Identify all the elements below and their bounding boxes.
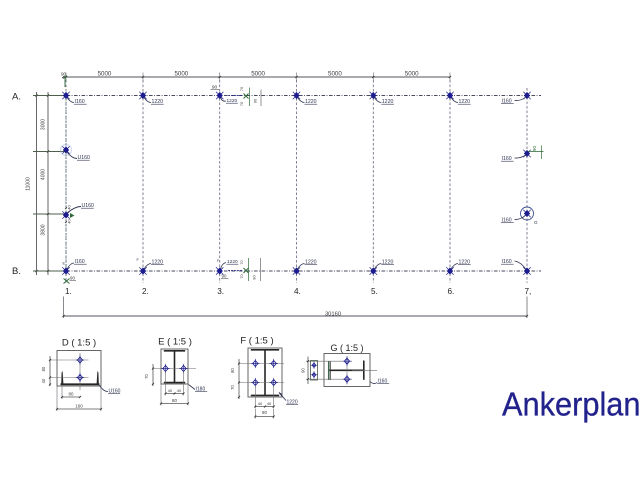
svg-text:3800: 3800: [41, 224, 47, 235]
svg-text:40: 40: [67, 219, 72, 224]
svg-text:70: 70: [240, 102, 244, 106]
svg-text:E ( 1:5 ): E ( 1:5 ): [158, 337, 192, 348]
svg-text:90: 90: [222, 274, 227, 279]
svg-text:G ( 1:5 ): G ( 1:5 ): [330, 343, 363, 353]
svg-text:D ( 1:5 ): D ( 1:5 ): [62, 338, 96, 349]
svg-text:160: 160: [75, 404, 83, 409]
svg-text:90: 90: [70, 275, 75, 280]
svg-text:70: 70: [144, 374, 149, 379]
svg-text:80: 80: [41, 366, 46, 371]
svg-text:40: 40: [258, 401, 263, 406]
svg-text:70: 70: [240, 260, 244, 264]
svg-text:70: 70: [240, 274, 244, 278]
svg-text:90: 90: [253, 98, 258, 103]
svg-text:90: 90: [301, 368, 306, 373]
svg-text:7,: 7,: [525, 287, 532, 296]
svg-text:5.: 5.: [371, 287, 378, 296]
svg-text:4000: 4000: [41, 169, 47, 180]
svg-text:A.: A.: [12, 92, 21, 103]
svg-text:40: 40: [67, 205, 72, 210]
svg-text:5000: 5000: [328, 71, 342, 78]
svg-text:F ( 1:5 ): F ( 1:5 ): [240, 336, 273, 347]
svg-text:5000: 5000: [405, 71, 419, 78]
svg-text:40: 40: [41, 378, 46, 383]
svg-text:40: 40: [267, 401, 272, 406]
svg-text:5000: 5000: [174, 71, 188, 78]
svg-text:B.: B.: [12, 266, 21, 277]
svg-text:90: 90: [252, 275, 257, 280]
svg-text:3000: 3000: [41, 119, 47, 130]
svg-text:4.: 4.: [294, 287, 301, 296]
svg-text:1.: 1.: [65, 287, 72, 296]
svg-text:6.: 6.: [448, 287, 455, 296]
svg-text:40: 40: [168, 388, 173, 393]
svg-text:70: 70: [230, 385, 235, 390]
svg-text:5000: 5000: [251, 71, 265, 78]
svg-text:80: 80: [69, 392, 74, 397]
svg-text:Ankerplan: Ankerplan: [502, 386, 640, 423]
svg-text:90: 90: [532, 146, 537, 152]
svg-text:80: 80: [230, 368, 235, 373]
svg-text:30160: 30160: [325, 312, 341, 318]
svg-text:80: 80: [172, 398, 177, 403]
svg-text:90: 90: [61, 72, 67, 77]
svg-text:11000: 11000: [26, 177, 32, 191]
svg-text:80: 80: [262, 410, 267, 415]
svg-text:3.: 3.: [217, 287, 224, 296]
svg-text:G: G: [534, 220, 538, 225]
svg-text:5000: 5000: [98, 71, 112, 78]
svg-text:40: 40: [177, 388, 182, 393]
svg-text:2.: 2.: [142, 287, 149, 296]
svg-text:70: 70: [240, 87, 244, 91]
